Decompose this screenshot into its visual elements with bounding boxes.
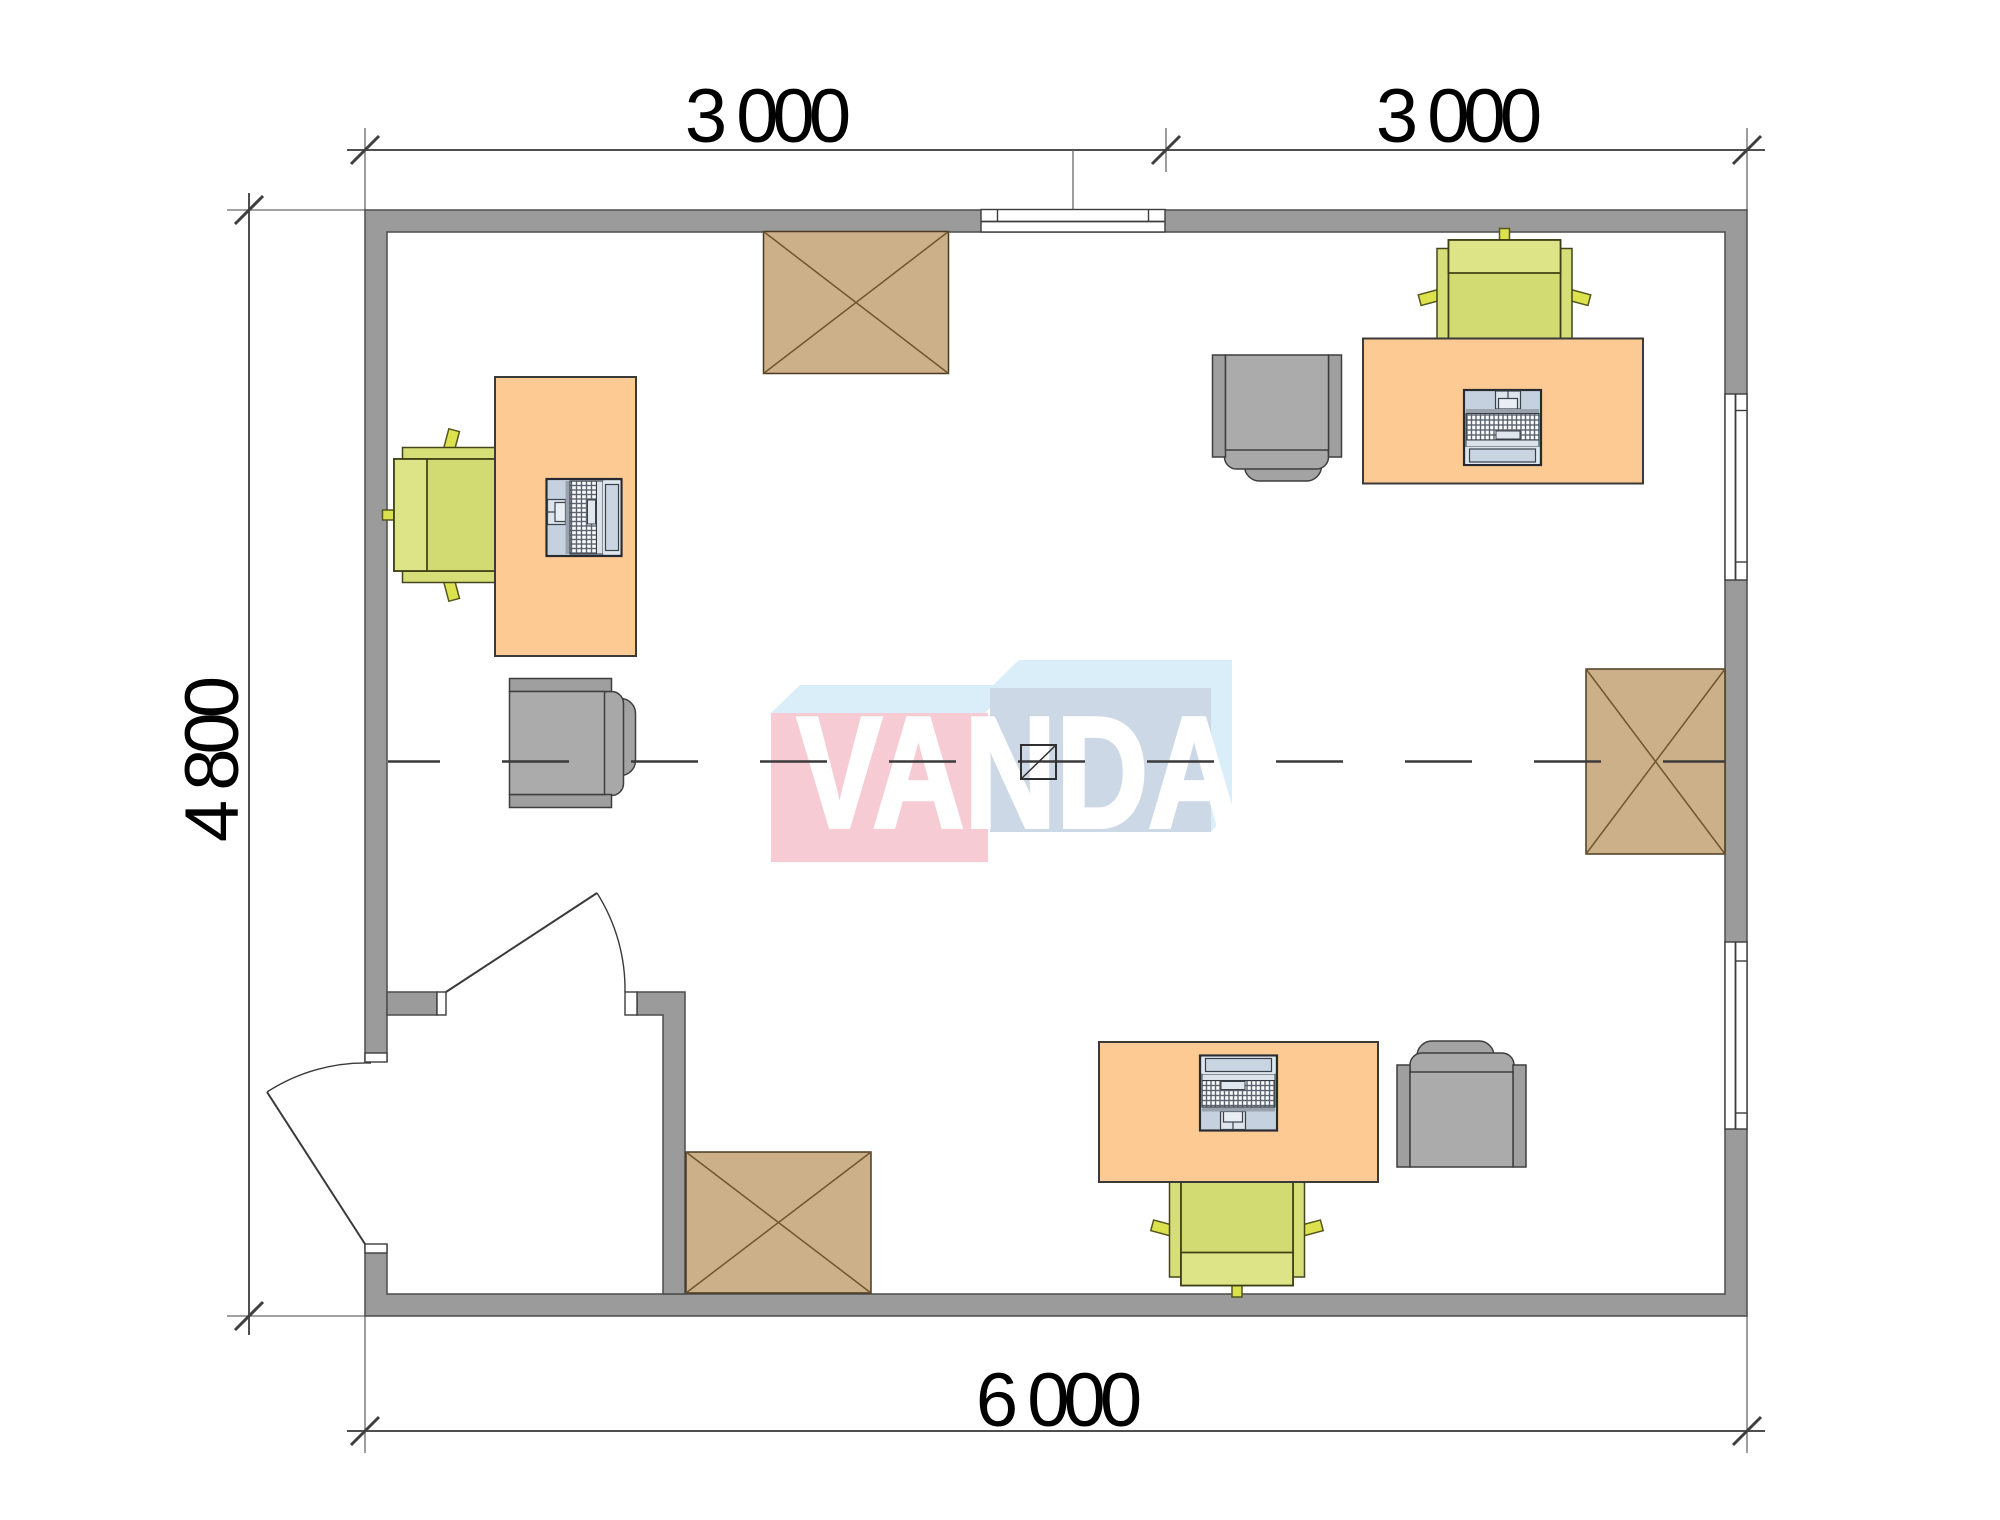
- svg-text:3 000: 3 000: [685, 74, 849, 159]
- svg-text:3 000: 3 000: [1376, 74, 1540, 159]
- svg-text:4 800: 4 800: [170, 678, 255, 842]
- svg-text:VANDA: VANDA: [797, 685, 1240, 861]
- svg-text:6 000: 6 000: [976, 1358, 1140, 1443]
